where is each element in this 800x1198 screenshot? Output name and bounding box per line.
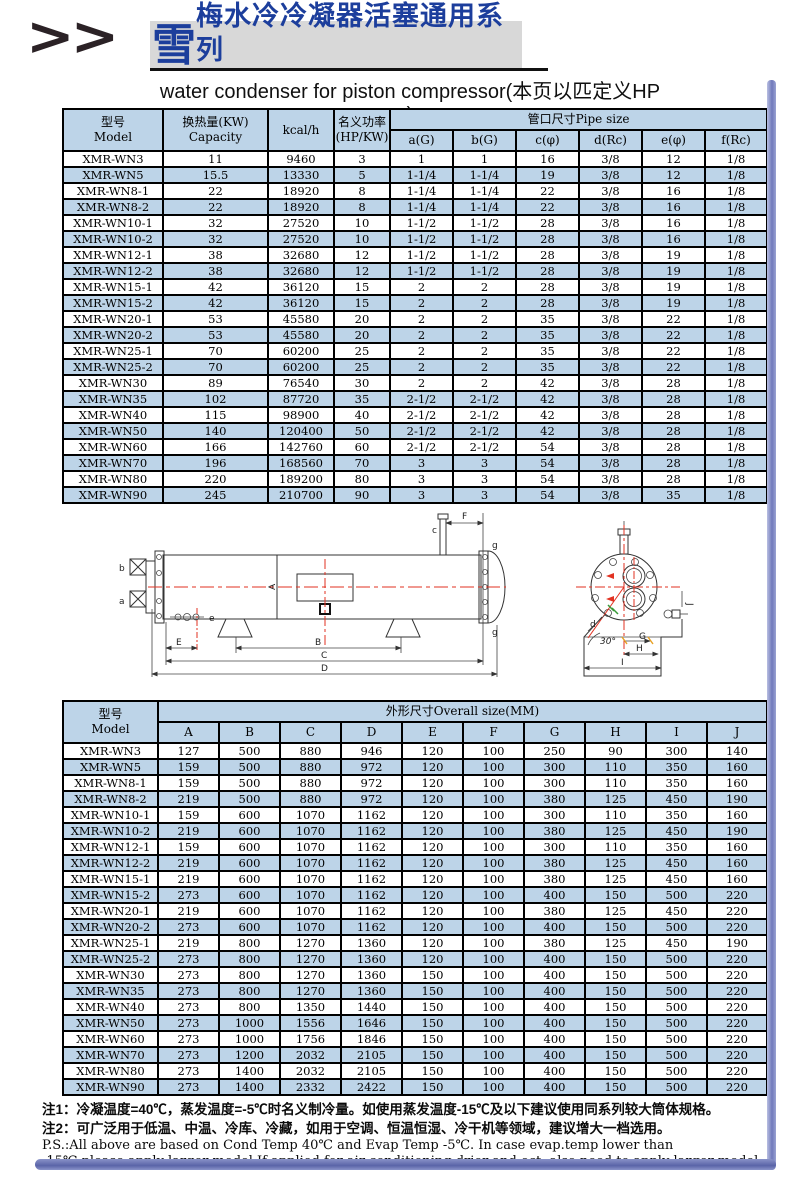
value-cell: 142760 xyxy=(268,439,334,455)
value-cell: 28 xyxy=(516,295,579,311)
value-cell: 3 xyxy=(334,151,390,167)
value-cell: 166 xyxy=(163,439,268,455)
value-cell: 500 xyxy=(219,775,280,791)
value-cell: 1 xyxy=(390,151,453,167)
value-cell: 35 xyxy=(516,311,579,327)
value-cell: 11 xyxy=(163,151,268,167)
value-cell: 98900 xyxy=(268,407,334,423)
value-cell: 273 xyxy=(158,1047,219,1063)
value-cell: 500 xyxy=(646,983,707,999)
model-cell: XMR-WN12-2 xyxy=(63,263,163,279)
value-cell: 19 xyxy=(516,167,579,183)
value-cell: 450 xyxy=(646,855,707,871)
model-cell: XMR-WN30 xyxy=(63,375,163,391)
value-cell: 1/8 xyxy=(705,151,767,167)
value-cell: 125 xyxy=(585,903,646,919)
value-cell: 1/8 xyxy=(705,455,767,471)
value-cell: 1/8 xyxy=(705,343,767,359)
value-cell: 115 xyxy=(163,407,268,423)
value-cell: 70 xyxy=(163,359,268,375)
value-cell: 2-1/2 xyxy=(453,407,516,423)
table-row: XMR-WN3527380012701360150100400150500220 xyxy=(63,983,767,999)
model-cell: XMR-WN3 xyxy=(63,743,158,759)
value-cell: 190 xyxy=(707,935,767,951)
value-cell: 100 xyxy=(463,759,524,775)
value-cell: 2 xyxy=(453,295,516,311)
col-header-kcal: kcal/h xyxy=(268,109,334,151)
value-cell: 1000 xyxy=(219,1031,280,1047)
value-cell: 500 xyxy=(219,791,280,807)
value-cell: 100 xyxy=(463,999,524,1015)
model-cell: XMR-WN20-1 xyxy=(63,903,158,919)
value-cell: 380 xyxy=(524,935,585,951)
value-cell: 300 xyxy=(524,807,585,823)
value-cell: 220 xyxy=(707,887,767,903)
value-cell: 1360 xyxy=(341,983,402,999)
value-cell: 219 xyxy=(158,903,219,919)
value-cell: 35 xyxy=(516,327,579,343)
dim-label-angle: 30° xyxy=(600,637,616,647)
dim-label-d: d xyxy=(590,620,596,630)
value-cell: 400 xyxy=(524,1079,585,1095)
value-cell: 1270 xyxy=(280,983,341,999)
value-cell: 1162 xyxy=(341,871,402,887)
model-cell: XMR-WN50 xyxy=(63,1015,158,1031)
model-cell: XMR-WN40 xyxy=(63,999,158,1015)
value-cell: 400 xyxy=(524,983,585,999)
value-cell: 8 xyxy=(334,199,390,215)
value-cell: 168560 xyxy=(268,455,334,471)
value-cell: 1/8 xyxy=(705,167,767,183)
col-header-capacity: 换热量(KW) Capacity xyxy=(163,109,268,151)
value-cell: 1 xyxy=(453,151,516,167)
table-row: XMR-WN15-242361201522283/8191/8 xyxy=(63,295,767,311)
table-row: XMR-WN3027380012701360150100400150500220 xyxy=(63,967,767,983)
value-cell: 273 xyxy=(158,967,219,983)
value-cell: 2 xyxy=(453,359,516,375)
value-cell: 1070 xyxy=(280,887,341,903)
ps-line-1: P.S.:All above are based on Cond Temp 40… xyxy=(42,1138,742,1153)
value-cell: 3 xyxy=(390,471,453,487)
value-cell: 12 xyxy=(642,167,705,183)
value-cell: 880 xyxy=(280,775,341,791)
value-cell: 120 xyxy=(402,887,463,903)
value-cell: 300 xyxy=(524,839,585,855)
value-cell: 150 xyxy=(585,951,646,967)
col-header-f: f(Rc) xyxy=(705,130,767,151)
value-cell: 3/8 xyxy=(579,311,642,327)
value-cell: 300 xyxy=(646,743,707,759)
col-header-model-en: Model xyxy=(64,130,162,145)
value-cell: 12 xyxy=(334,247,390,263)
table-row: XMR-WN8027314002032210515010040015050022… xyxy=(63,1063,767,1079)
value-cell: 10 xyxy=(334,231,390,247)
table-row: XMR-WN20-153455802022353/8221/8 xyxy=(63,311,767,327)
col-header-model-cn: 型号 xyxy=(64,115,162,130)
model-cell: XMR-WN25-2 xyxy=(63,359,163,375)
value-cell: 2 xyxy=(453,311,516,327)
value-cell: 120 xyxy=(402,871,463,887)
value-cell: 3/8 xyxy=(579,263,642,279)
table-row: XMR-WN7027312002032210515010040015050022… xyxy=(63,1047,767,1063)
value-cell: 35 xyxy=(516,343,579,359)
value-cell: 1162 xyxy=(341,887,402,903)
value-cell: 150 xyxy=(402,1015,463,1031)
value-cell: 100 xyxy=(463,983,524,999)
value-cell: 100 xyxy=(463,887,524,903)
value-cell: 150 xyxy=(402,1063,463,1079)
value-cell: 102 xyxy=(163,391,268,407)
value-cell: 1-1/2 xyxy=(390,263,453,279)
value-cell: 1/8 xyxy=(705,327,767,343)
value-cell: 22 xyxy=(163,183,268,199)
value-cell: 3 xyxy=(453,471,516,487)
table-row: XMR-WN8-1221892081-1/41-1/4223/8161/8 xyxy=(63,183,767,199)
table-row: XMR-WN9027314002332242215010040015050022… xyxy=(63,1079,767,1095)
capacity-table: 型号 Model 换热量(KW) Capacity kcal/h 名义功率 (H… xyxy=(62,108,768,504)
value-cell: 210700 xyxy=(268,487,334,503)
model-cell: XMR-WN8-1 xyxy=(63,183,163,199)
value-cell: 1/8 xyxy=(705,471,767,487)
value-cell: 100 xyxy=(463,903,524,919)
value-cell: 380 xyxy=(524,903,585,919)
col-group-overall-size: 外形尺寸Overall size(MM) xyxy=(158,701,767,722)
value-cell: 380 xyxy=(524,871,585,887)
model-cell: XMR-WN40 xyxy=(63,407,163,423)
value-cell: 2 xyxy=(390,311,453,327)
value-cell: 1-1/2 xyxy=(453,231,516,247)
value-cell: 1360 xyxy=(341,935,402,951)
value-cell: 42 xyxy=(516,391,579,407)
value-cell: 19 xyxy=(642,263,705,279)
value-cell: 28 xyxy=(516,279,579,295)
col-header-I: I xyxy=(646,722,707,743)
table-row: XMR-WN12-1159600107011621201003001103501… xyxy=(63,839,767,855)
value-cell: 250 xyxy=(524,743,585,759)
table-row: XMR-WN10-13227520101-1/21-1/2283/8161/8 xyxy=(63,215,767,231)
value-cell: 27520 xyxy=(268,231,334,247)
value-cell: 800 xyxy=(219,983,280,999)
table-row: XMR-WN8-2221892081-1/41-1/4223/8161/8 xyxy=(63,199,767,215)
value-cell: 125 xyxy=(585,855,646,871)
table-row: XMR-WN4027380013501440150100400150500220 xyxy=(63,999,767,1015)
model-cell: XMR-WN5 xyxy=(63,759,158,775)
value-cell: 120 xyxy=(402,759,463,775)
value-cell: 300 xyxy=(524,775,585,791)
value-cell: 22 xyxy=(163,199,268,215)
value-cell: 120 xyxy=(402,903,463,919)
value-cell: 400 xyxy=(524,999,585,1015)
value-cell: 150 xyxy=(402,1031,463,1047)
value-cell: 36120 xyxy=(268,279,334,295)
value-cell: 500 xyxy=(646,919,707,935)
value-cell: 12 xyxy=(334,263,390,279)
value-cell: 160 xyxy=(707,871,767,887)
model-cell: XMR-WN80 xyxy=(63,1063,158,1079)
value-cell: 150 xyxy=(585,919,646,935)
value-cell: 100 xyxy=(463,807,524,823)
value-cell: 1-1/2 xyxy=(390,247,453,263)
value-cell: 1360 xyxy=(341,951,402,967)
value-cell: 22 xyxy=(516,199,579,215)
value-cell: 150 xyxy=(585,1015,646,1031)
value-cell: 1440 xyxy=(341,999,402,1015)
value-cell: 100 xyxy=(463,967,524,983)
table-row: XMR-WN12-13832680121-1/21-1/2283/8191/8 xyxy=(63,247,767,263)
table-row: XMR-WN10-23227520101-1/21-1/2283/8161/8 xyxy=(63,231,767,247)
value-cell: 1-1/4 xyxy=(453,199,516,215)
value-cell: 28 xyxy=(516,247,579,263)
col-header-capacity-cn: 换热量(KW) xyxy=(164,115,267,130)
value-cell: 450 xyxy=(646,935,707,951)
value-cell: 3/8 xyxy=(579,407,642,423)
value-cell: 22 xyxy=(642,343,705,359)
model-cell: XMR-WN10-2 xyxy=(63,231,163,247)
value-cell: 1162 xyxy=(341,807,402,823)
value-cell: 100 xyxy=(463,951,524,967)
value-cell: 16 xyxy=(642,231,705,247)
value-cell: 380 xyxy=(524,855,585,871)
value-cell: 16 xyxy=(642,199,705,215)
table-row: XMR-WN8-2219500880972120100380125450190 xyxy=(63,791,767,807)
value-cell: 10 xyxy=(334,215,390,231)
value-cell: 3/8 xyxy=(579,455,642,471)
value-cell: 150 xyxy=(585,983,646,999)
value-cell: 160 xyxy=(707,839,767,855)
value-cell: 3/8 xyxy=(579,391,642,407)
value-cell: 350 xyxy=(646,807,707,823)
value-cell: 350 xyxy=(646,775,707,791)
value-cell: 18920 xyxy=(268,199,334,215)
value-cell: 600 xyxy=(219,903,280,919)
value-cell: 15.5 xyxy=(163,167,268,183)
overall-size-table-wrap: 型号 Model 外形尺寸Overall size(MM) A B C D E … xyxy=(62,700,768,1096)
value-cell: 100 xyxy=(463,1015,524,1031)
dim-label-I: I xyxy=(621,658,624,668)
value-cell: 120 xyxy=(402,823,463,839)
value-cell: 600 xyxy=(219,887,280,903)
value-cell: 400 xyxy=(524,967,585,983)
value-cell: 972 xyxy=(341,759,402,775)
value-cell: 273 xyxy=(158,1031,219,1047)
value-cell: 45580 xyxy=(268,327,334,343)
value-cell: 28 xyxy=(516,263,579,279)
value-cell: 2 xyxy=(390,375,453,391)
value-cell: 500 xyxy=(646,999,707,1015)
value-cell: 1162 xyxy=(341,839,402,855)
col-header-D: D xyxy=(341,722,402,743)
value-cell: 76540 xyxy=(268,375,334,391)
value-cell: 3/8 xyxy=(579,295,642,311)
value-cell: 1200 xyxy=(219,1047,280,1063)
value-cell: 220 xyxy=(707,1015,767,1031)
page-title: 雪 梅水冷冷凝器活塞通用系列 xyxy=(150,21,522,68)
model-cell: XMR-WN25-1 xyxy=(63,343,163,359)
value-cell: 190 xyxy=(707,791,767,807)
value-cell: 100 xyxy=(463,1079,524,1095)
value-cell: 220 xyxy=(707,1047,767,1063)
value-cell: 32 xyxy=(163,231,268,247)
model-cell: XMR-WN35 xyxy=(63,391,163,407)
model-cell: XMR-WN10-2 xyxy=(63,823,158,839)
value-cell: 1400 xyxy=(219,1063,280,1079)
value-cell: 150 xyxy=(585,1031,646,1047)
value-cell: 3/8 xyxy=(579,343,642,359)
value-cell: 972 xyxy=(341,775,402,791)
value-cell: 80 xyxy=(334,471,390,487)
value-cell: 3 xyxy=(453,487,516,503)
model-cell: XMR-WN90 xyxy=(63,487,163,503)
table-row: XMR-WN3119460311163/8121/8 xyxy=(63,151,767,167)
model-cell: XMR-WN60 xyxy=(63,439,163,455)
value-cell: 1-1/4 xyxy=(453,167,516,183)
value-cell: 28 xyxy=(516,231,579,247)
model-cell: XMR-WN70 xyxy=(63,1047,158,1063)
value-cell: 38 xyxy=(163,263,268,279)
model-cell: XMR-WN5 xyxy=(63,167,163,183)
port-label-g-bottom: g xyxy=(492,628,498,638)
value-cell: 450 xyxy=(646,903,707,919)
value-cell: 1/8 xyxy=(705,407,767,423)
model-cell: XMR-WN12-1 xyxy=(63,839,158,855)
col-header-d: d(Rc) xyxy=(579,130,642,151)
value-cell: 273 xyxy=(158,999,219,1015)
value-cell: 3/8 xyxy=(579,471,642,487)
value-cell: 1162 xyxy=(341,823,402,839)
table-row: XMR-WN5027310001556164615010040015050022… xyxy=(63,1015,767,1031)
page-edge-bar-bottom xyxy=(35,1159,776,1170)
value-cell: 32680 xyxy=(268,247,334,263)
value-cell: 8 xyxy=(334,183,390,199)
value-cell: 100 xyxy=(463,855,524,871)
value-cell: 2 xyxy=(390,359,453,375)
value-cell: 1/8 xyxy=(705,391,767,407)
value-cell: 90 xyxy=(334,487,390,503)
value-cell: 500 xyxy=(646,1079,707,1095)
value-cell: 400 xyxy=(524,887,585,903)
value-cell: 60 xyxy=(334,439,390,455)
value-cell: 2332 xyxy=(280,1079,341,1095)
value-cell: 159 xyxy=(158,775,219,791)
value-cell: 100 xyxy=(463,935,524,951)
value-cell: 2 xyxy=(390,279,453,295)
dim-label-G: G xyxy=(639,632,646,642)
value-cell: 38 xyxy=(163,247,268,263)
value-cell: 28 xyxy=(642,439,705,455)
table-row: XMR-WN20-253455802022353/8221/8 xyxy=(63,327,767,343)
model-cell: XMR-WN50 xyxy=(63,423,163,439)
value-cell: 160 xyxy=(707,855,767,871)
col-header-model2-cn: 型号 xyxy=(64,707,157,722)
value-cell: 1-1/4 xyxy=(390,167,453,183)
value-cell: 3/8 xyxy=(579,247,642,263)
value-cell: 120400 xyxy=(268,423,334,439)
model-cell: XMR-WN15-2 xyxy=(63,295,163,311)
value-cell: 1-1/4 xyxy=(390,199,453,215)
note-2: 注2：可广泛用于低温、中温、冷库、冷藏，如用于空调、恒温恒湿、冷干机等领域，建议… xyxy=(42,1117,742,1137)
table-row: XMR-WN802201892008033543/8281/8 xyxy=(63,471,767,487)
value-cell: 140 xyxy=(163,423,268,439)
value-cell: 27520 xyxy=(268,215,334,231)
value-cell: 800 xyxy=(219,951,280,967)
overall-size-table: 型号 Model 外形尺寸Overall size(MM) A B C D E … xyxy=(62,700,768,1096)
table-row: XMR-WN902452107009033543/8351/8 xyxy=(63,487,767,503)
col-header-model2-en: Model xyxy=(64,722,157,737)
value-cell: 22 xyxy=(642,311,705,327)
value-cell: 800 xyxy=(219,967,280,983)
value-cell: 273 xyxy=(158,983,219,999)
value-cell: 150 xyxy=(402,1047,463,1063)
value-cell: 1-1/4 xyxy=(453,183,516,199)
value-cell: 35 xyxy=(516,359,579,375)
value-cell: 160 xyxy=(707,759,767,775)
value-cell: 380 xyxy=(524,823,585,839)
value-cell: 219 xyxy=(158,871,219,887)
page-title-text: 梅水冷冷凝器活塞通用系列 xyxy=(196,0,520,68)
value-cell: 3/8 xyxy=(579,279,642,295)
value-cell: 1/8 xyxy=(705,199,767,215)
value-cell: 30 xyxy=(334,375,390,391)
col-header-c: c(φ) xyxy=(516,130,579,151)
col-header-H: H xyxy=(585,722,646,743)
value-cell: 159 xyxy=(158,839,219,855)
value-cell: 220 xyxy=(163,471,268,487)
value-cell: 1/8 xyxy=(705,247,767,263)
value-cell: 1/8 xyxy=(705,359,767,375)
value-cell: 600 xyxy=(219,807,280,823)
table-row: XMR-WN20-2273600107011621201004001505002… xyxy=(63,919,767,935)
value-cell: 28 xyxy=(642,375,705,391)
value-cell: 2 xyxy=(390,295,453,311)
value-cell: 1/8 xyxy=(705,295,767,311)
model-cell: XMR-WN20-2 xyxy=(63,919,158,935)
value-cell: 800 xyxy=(219,999,280,1015)
value-cell: 400 xyxy=(524,1031,585,1047)
value-cell: 120 xyxy=(402,951,463,967)
value-cell: 2032 xyxy=(280,1063,341,1079)
col-header-J: J xyxy=(707,722,767,743)
value-cell: 100 xyxy=(463,871,524,887)
model-cell: XMR-WN12-2 xyxy=(63,855,158,871)
value-cell: 400 xyxy=(524,1063,585,1079)
value-cell: 9460 xyxy=(268,151,334,167)
brand-logo-char: 雪 xyxy=(152,24,196,68)
value-cell: 3 xyxy=(453,455,516,471)
model-cell: XMR-WN60 xyxy=(63,1031,158,1047)
value-cell: 22 xyxy=(642,327,705,343)
value-cell: 28 xyxy=(642,407,705,423)
value-cell: 150 xyxy=(402,983,463,999)
model-cell: XMR-WN90 xyxy=(63,1079,158,1095)
dim-label-E: E xyxy=(176,638,182,648)
value-cell: 100 xyxy=(463,775,524,791)
value-cell: 450 xyxy=(646,871,707,887)
page-edge-bar-right xyxy=(767,80,776,1170)
value-cell: 972 xyxy=(341,791,402,807)
value-cell: 20 xyxy=(334,311,390,327)
value-cell: 150 xyxy=(585,967,646,983)
value-cell: 1/8 xyxy=(705,215,767,231)
value-cell: 245 xyxy=(163,487,268,503)
value-cell: 3/8 xyxy=(579,231,642,247)
value-cell: 120 xyxy=(402,775,463,791)
value-cell: 600 xyxy=(219,871,280,887)
value-cell: 40 xyxy=(334,407,390,423)
value-cell: 1162 xyxy=(341,919,402,935)
value-cell: 1756 xyxy=(280,1031,341,1047)
value-cell: 2-1/2 xyxy=(390,423,453,439)
model-cell: XMR-WN15-2 xyxy=(63,887,158,903)
